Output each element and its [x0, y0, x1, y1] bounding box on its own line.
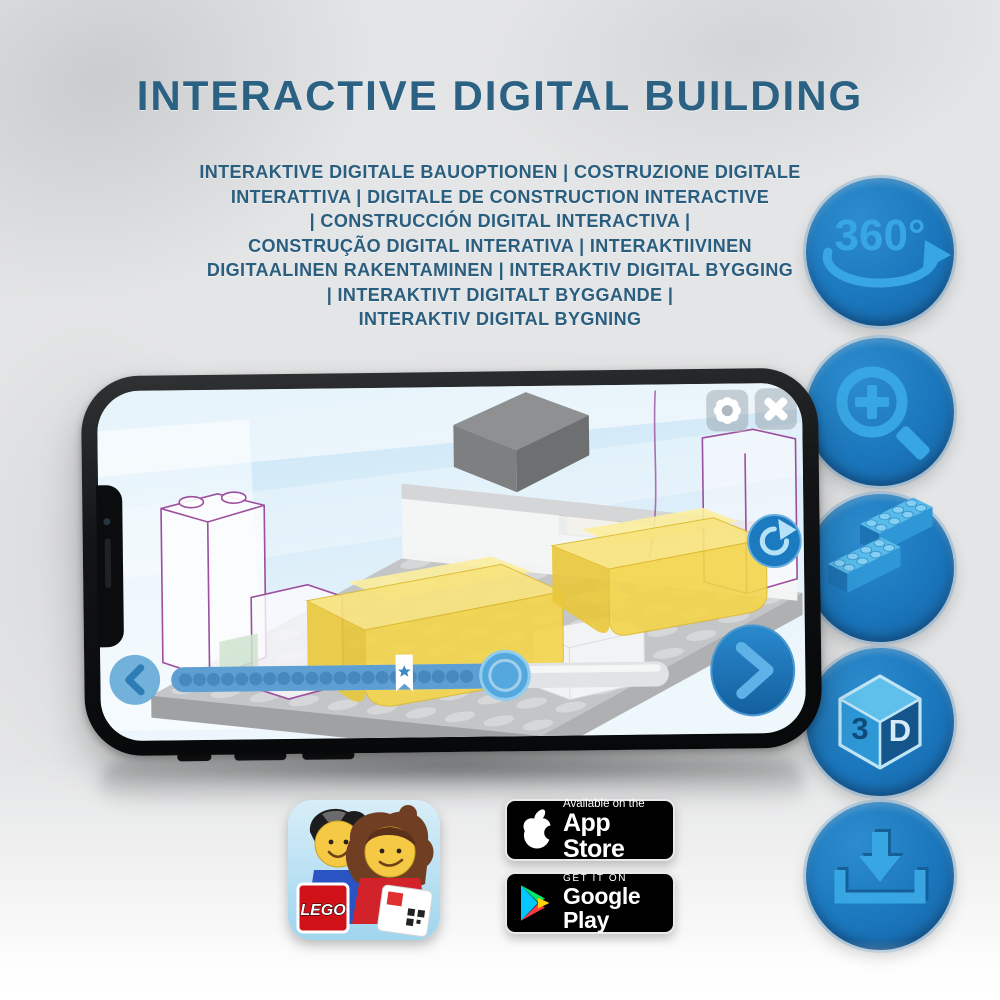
progress-thumb[interactable] — [480, 651, 529, 700]
download-icon — [806, 802, 954, 950]
subtitle-line: INTERATTIVA | DIGITALE DE CONSTRUCTION I… — [140, 185, 860, 210]
google-play-badge[interactable]: GET IT ON Google Play — [505, 872, 675, 934]
cube-face-3: 3 — [851, 711, 868, 746]
brick-bottom — [828, 537, 901, 593]
subtitle-line: | CONSTRUCCIÓN DIGITAL INTERACTIVA | — [140, 209, 860, 234]
page-title: INTERACTIVE DIGITAL BUILDING — [0, 72, 1000, 120]
app-store-name: App Store — [563, 810, 663, 863]
download-arrow-head — [859, 856, 901, 882]
360-rotation-icon: 360° — [806, 178, 954, 326]
magnifier-glyph — [842, 372, 931, 461]
bottom-fade — [0, 940, 1000, 1000]
lego-logo-text: LEGO — [300, 902, 346, 919]
download-arrow-shaft — [872, 832, 888, 858]
rotate-view-button[interactable] — [748, 515, 801, 568]
settings-button[interactable] — [706, 389, 749, 432]
subtitle-line: | INTERAKTIVT DIGITALT BYGGANDE | — [140, 283, 860, 308]
subtitle-line: INTERAKTIVE DIGITALE BAUOPTIONEN | COSTR… — [140, 160, 860, 185]
rotation-arrow-head — [923, 240, 951, 270]
phone-screen — [97, 383, 806, 742]
phone-reflection — [100, 762, 805, 806]
apple-icon — [517, 806, 557, 854]
phone-speaker — [105, 538, 112, 588]
multilingual-subtitle: INTERAKTIVE DIGITALE BAUOPTIONEN | COSTR… — [140, 160, 860, 332]
zoom-in-icon — [806, 338, 954, 486]
stacked-bricks-icon — [806, 494, 954, 642]
google-play-name: Google Play — [563, 884, 663, 932]
subtitle-line: INTERAKTIV DIGITAL BYGNING — [140, 307, 860, 332]
phone-camera — [103, 518, 110, 525]
3d-cube-icon: 3 D — [806, 648, 954, 796]
subtitle-line: CONSTRUÇÃO DIGITAL INTERATIVA | INTERAKT… — [140, 234, 860, 259]
google-play-icon — [517, 884, 557, 922]
instruction-booklet — [377, 885, 433, 938]
subtitle-line: DIGITAALINEN RAKENTAMINEN | INTERAKTIV D… — [140, 258, 860, 283]
cube-face-d: D — [889, 713, 911, 748]
smartphone-mockup — [81, 368, 823, 757]
360-label: 360° — [834, 211, 925, 260]
lego-app-marketing-banner: INTERACTIVE DIGITAL BUILDING INTERAKTIVE… — [0, 0, 1000, 1000]
app-store-badge[interactable]: Available on the App Store — [505, 799, 675, 861]
lego-logo: LEGO — [298, 884, 348, 932]
lego-app-icon[interactable]: LEGO — [288, 800, 440, 940]
next-step-button[interactable] — [711, 625, 795, 716]
app-store-tagline: Available on the — [563, 798, 663, 810]
